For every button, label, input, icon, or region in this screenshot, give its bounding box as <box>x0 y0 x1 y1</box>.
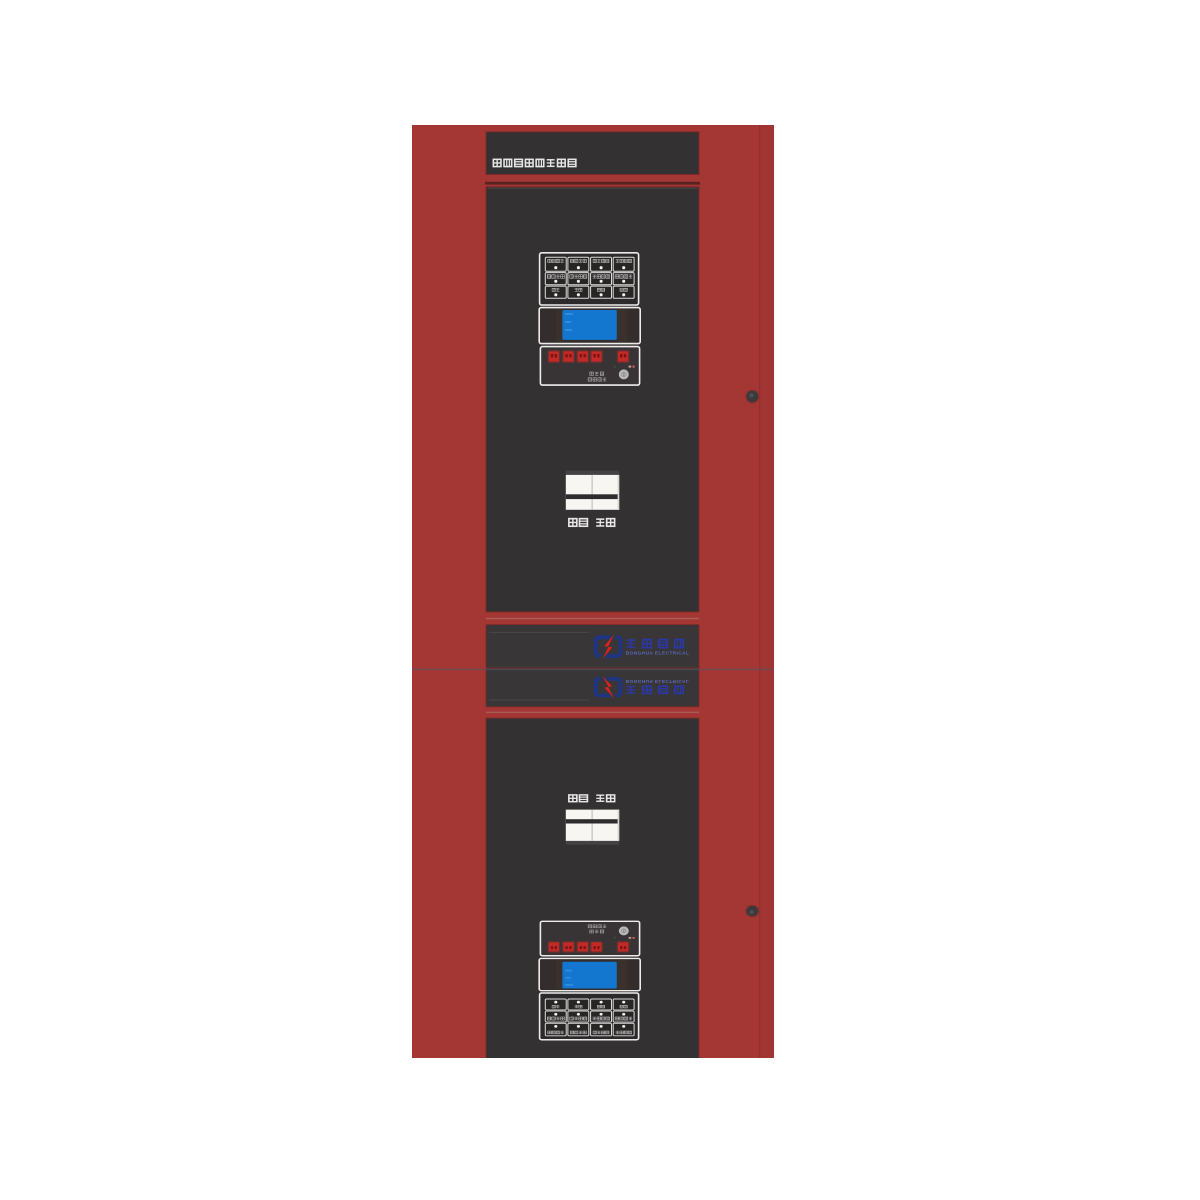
svg-text:BONGHUA ELECTRICAL: BONGHUA ELECTRICAL <box>626 651 690 657</box>
